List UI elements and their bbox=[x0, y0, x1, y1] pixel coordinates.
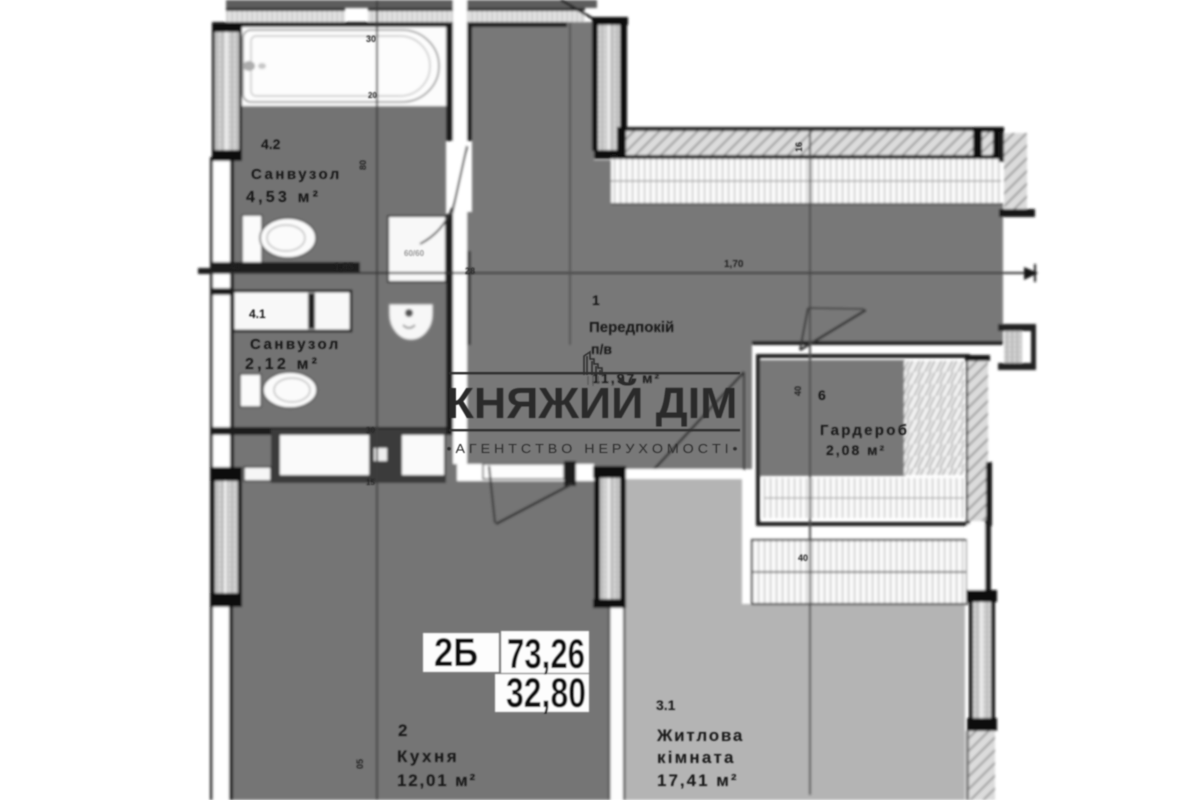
svg-text:30: 30 bbox=[366, 426, 375, 435]
svg-text:05: 05 bbox=[355, 759, 365, 769]
svg-text:4.1: 4.1 bbox=[249, 307, 266, 321]
svg-text:15: 15 bbox=[366, 478, 375, 487]
svg-text:28: 28 bbox=[465, 266, 475, 276]
svg-text:17,41 м²: 17,41 м² bbox=[657, 771, 739, 790]
svg-text:2Б: 2Б bbox=[434, 631, 478, 675]
svg-text:3.1: 3.1 bbox=[656, 697, 676, 713]
svg-text:Санвузол: Санвузол bbox=[250, 336, 341, 353]
svg-text:16: 16 bbox=[794, 142, 804, 152]
svg-text:Кухня: Кухня bbox=[397, 747, 459, 766]
svg-text:кімната: кімната bbox=[657, 748, 736, 767]
svg-text:2: 2 bbox=[398, 721, 407, 740]
svg-text:32,80: 32,80 bbox=[506, 669, 586, 716]
svg-text:4.2: 4.2 bbox=[261, 136, 281, 152]
svg-text:1: 1 bbox=[592, 292, 600, 308]
svg-text:4,53 м²: 4,53 м² bbox=[246, 189, 321, 206]
svg-text:80: 80 bbox=[358, 160, 368, 170]
svg-text:п/в: п/в bbox=[591, 341, 612, 357]
svg-text:Санвузол: Санвузол bbox=[251, 166, 342, 183]
svg-text:60/60: 60/60 bbox=[404, 249, 425, 258]
svg-text:20: 20 bbox=[368, 91, 377, 100]
svg-text:12,01 м²: 12,01 м² bbox=[397, 771, 477, 790]
svg-text:40: 40 bbox=[798, 553, 808, 563]
svg-text:КНЯЖИЙ ДІМ: КНЯЖИЙ ДІМ bbox=[447, 377, 738, 428]
svg-text:40: 40 bbox=[793, 386, 803, 396]
svg-text:2,08 м²: 2,08 м² bbox=[826, 442, 886, 458]
svg-text:30: 30 bbox=[366, 34, 376, 44]
svg-text:1,70: 1,70 bbox=[724, 259, 744, 270]
svg-text:40: 40 bbox=[230, 262, 240, 272]
svg-text:Житлова: Житлова bbox=[656, 726, 744, 745]
svg-text:1,85: 1,85 bbox=[334, 262, 354, 273]
svg-text:Передпокій: Передпокій bbox=[589, 319, 674, 336]
svg-text:6: 6 bbox=[818, 387, 826, 403]
svg-text:2,12 м²: 2,12 м² bbox=[245, 356, 320, 373]
svg-text:Гардероб: Гардероб bbox=[820, 422, 909, 439]
svg-text:• А Г Е Н Т С Т В О Н Е Р У: • А Г Е Н Т С Т В О Н Е Р У Х О М О С Т … bbox=[447, 442, 738, 456]
